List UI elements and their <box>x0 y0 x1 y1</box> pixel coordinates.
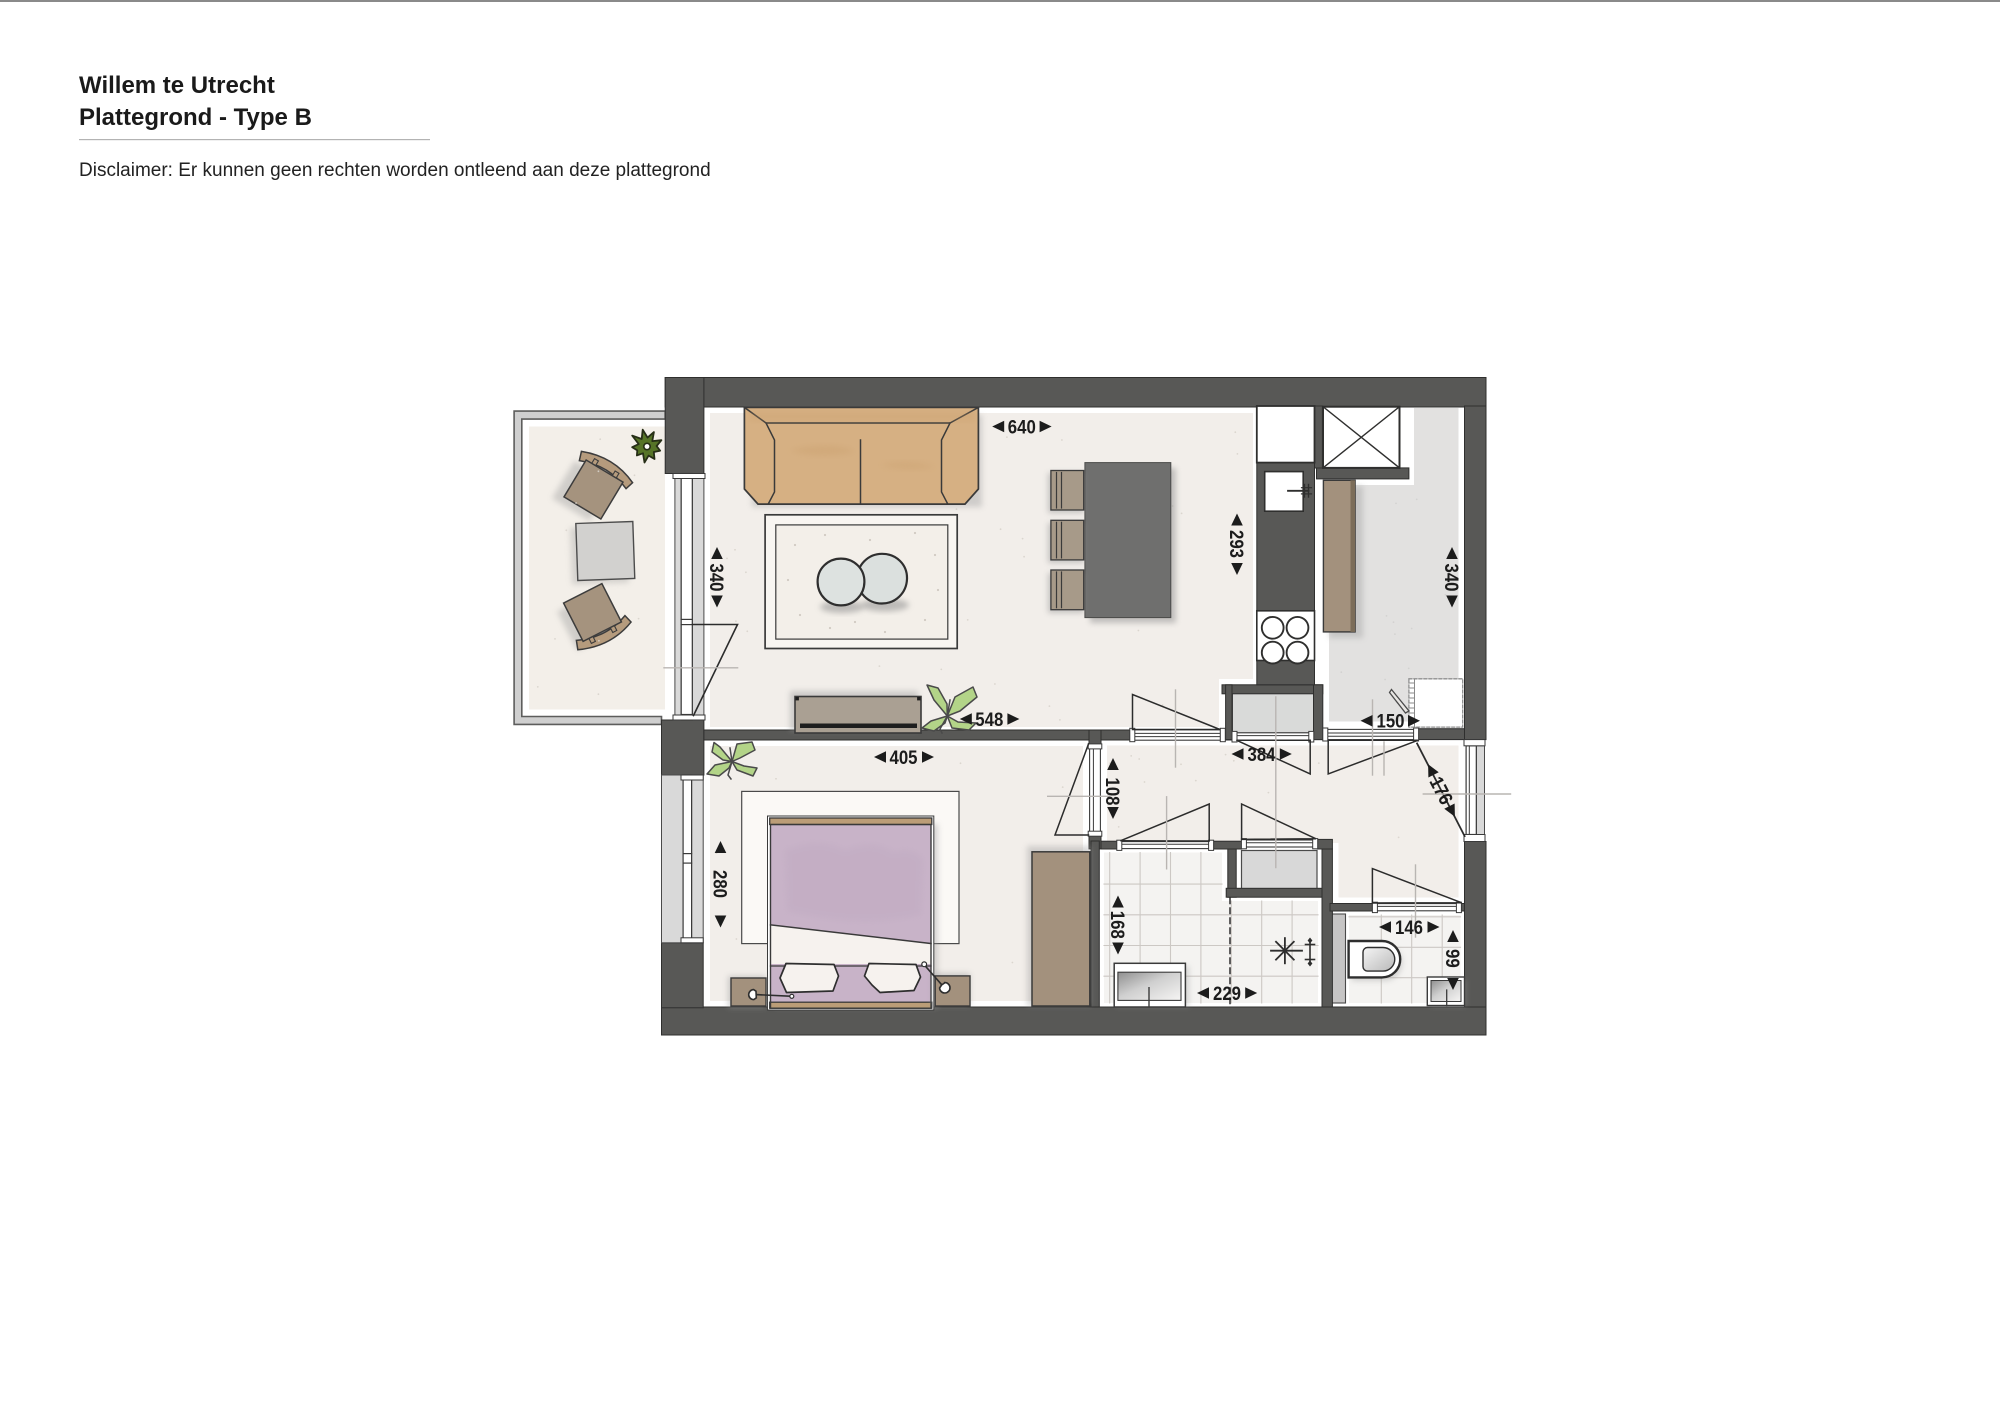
svg-text:293: 293 <box>1225 530 1247 558</box>
svg-text:146: 146 <box>1395 917 1423 939</box>
svg-text:229: 229 <box>1213 983 1241 1005</box>
svg-text:548: 548 <box>975 709 1003 731</box>
svg-text:108: 108 <box>1101 778 1123 806</box>
svg-text:280: 280 <box>709 870 731 898</box>
svg-text:Plattegrond - Type B: Plattegrond - Type B <box>79 104 312 131</box>
svg-text:150: 150 <box>1377 711 1405 733</box>
svg-text:99: 99 <box>1441 949 1463 968</box>
svg-text:384: 384 <box>1248 744 1276 766</box>
svg-text:340: 340 <box>1440 564 1462 592</box>
svg-text:640: 640 <box>1008 416 1036 438</box>
svg-text:Willem te Utrecht: Willem te Utrecht <box>79 72 275 99</box>
svg-text:405: 405 <box>890 747 918 769</box>
svg-text:340: 340 <box>705 564 727 592</box>
svg-text:Disclaimer: Er kunnen geen rec: Disclaimer: Er kunnen geen rechten worde… <box>79 160 711 181</box>
svg-text:168: 168 <box>1106 911 1128 939</box>
